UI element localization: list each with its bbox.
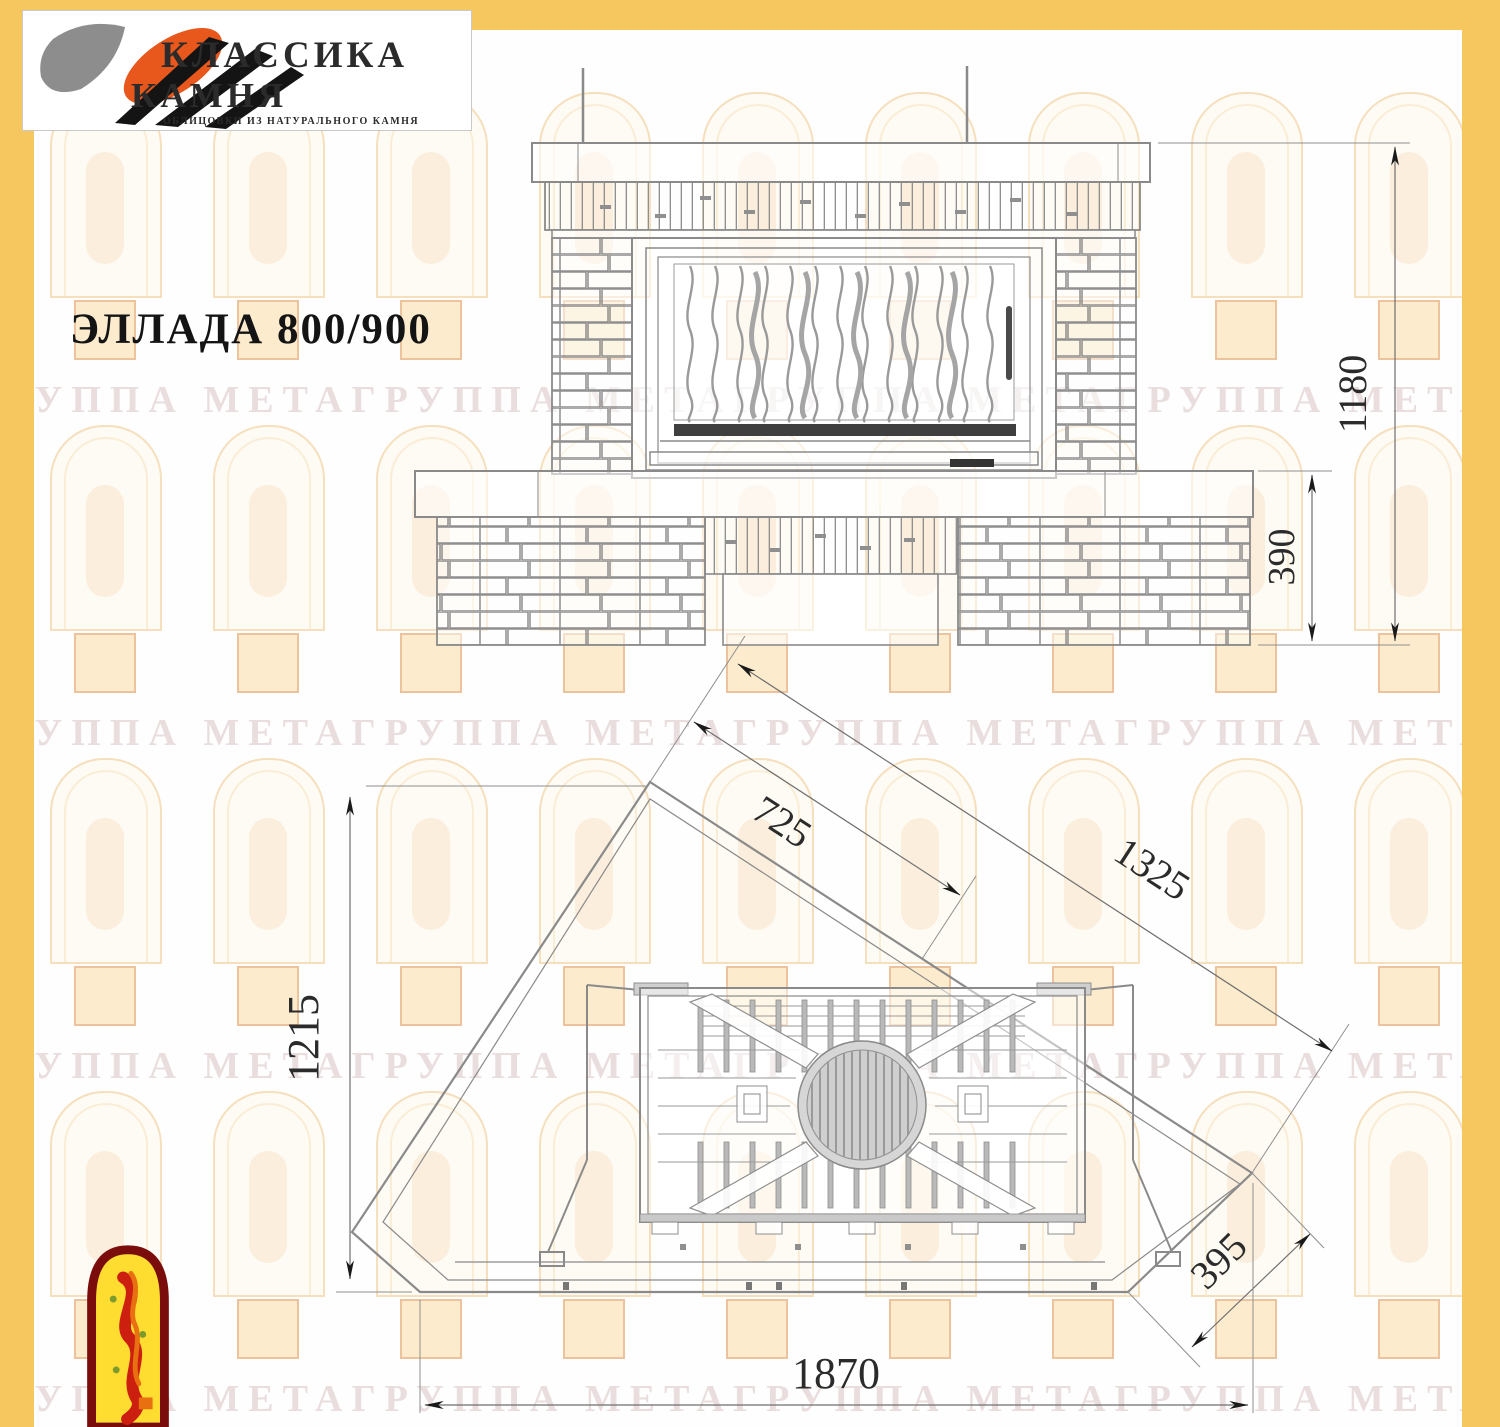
- dim-plan-side-depth: 1215: [279, 994, 328, 1082]
- right-pillar: [1056, 238, 1136, 474]
- brand-emblem-icon: [83, 1240, 173, 1427]
- dim-plan-front-width: 1870: [792, 1349, 880, 1398]
- plan-view-drawing: 1215 725 1325 395 1870: [279, 636, 1349, 1413]
- logo-subtitle: КАМНЯ: [131, 76, 287, 115]
- plan-insert: [634, 983, 1091, 1250]
- technical-drawing: 1180 390: [0, 0, 1500, 1427]
- logo-tagline: ОБЛИЦОВКИ ИЗ НАТУРАЛЬНОГО КАМНЯ: [163, 116, 419, 127]
- door-glass: [674, 264, 1014, 420]
- front-view-drawing: 1180 390: [415, 66, 1410, 645]
- dim-plan-chamfer: 395: [1181, 1223, 1255, 1297]
- base-frieze: [705, 517, 958, 574]
- door-grate: [674, 424, 1016, 436]
- base-masonry-left: [437, 517, 705, 645]
- logo-stone-icon: [40, 24, 125, 92]
- dim-front-base-height: 390: [1261, 529, 1303, 586]
- page-title: ЭЛЛАДА 800/900: [70, 305, 432, 354]
- firebox-door: [632, 238, 1056, 478]
- left-border: [0, 0, 34, 1427]
- left-pillar: [552, 238, 632, 474]
- door-handle: [1006, 306, 1012, 380]
- logo-title: КЛАССИКА: [161, 35, 408, 76]
- wood-niche: [723, 574, 938, 645]
- mantel-frieze: [545, 182, 1140, 230]
- dim-front-total-height: 1180: [1330, 355, 1375, 434]
- dim-plan-facade: 1325: [1107, 828, 1199, 909]
- company-logo: КЛАССИКА КАМНЯ ОБЛИЦОВКИ ИЗ НАТУРАЛЬНОГО…: [22, 10, 472, 131]
- mantel-shelf: [532, 143, 1150, 182]
- base-masonry-right: [958, 517, 1250, 645]
- right-border: [1462, 0, 1500, 1427]
- page: ГРУППА МЕТАГРУППА МЕТАГРУППА МЕТАГРУППА …: [0, 0, 1500, 1427]
- hearth-slab: [415, 471, 1253, 517]
